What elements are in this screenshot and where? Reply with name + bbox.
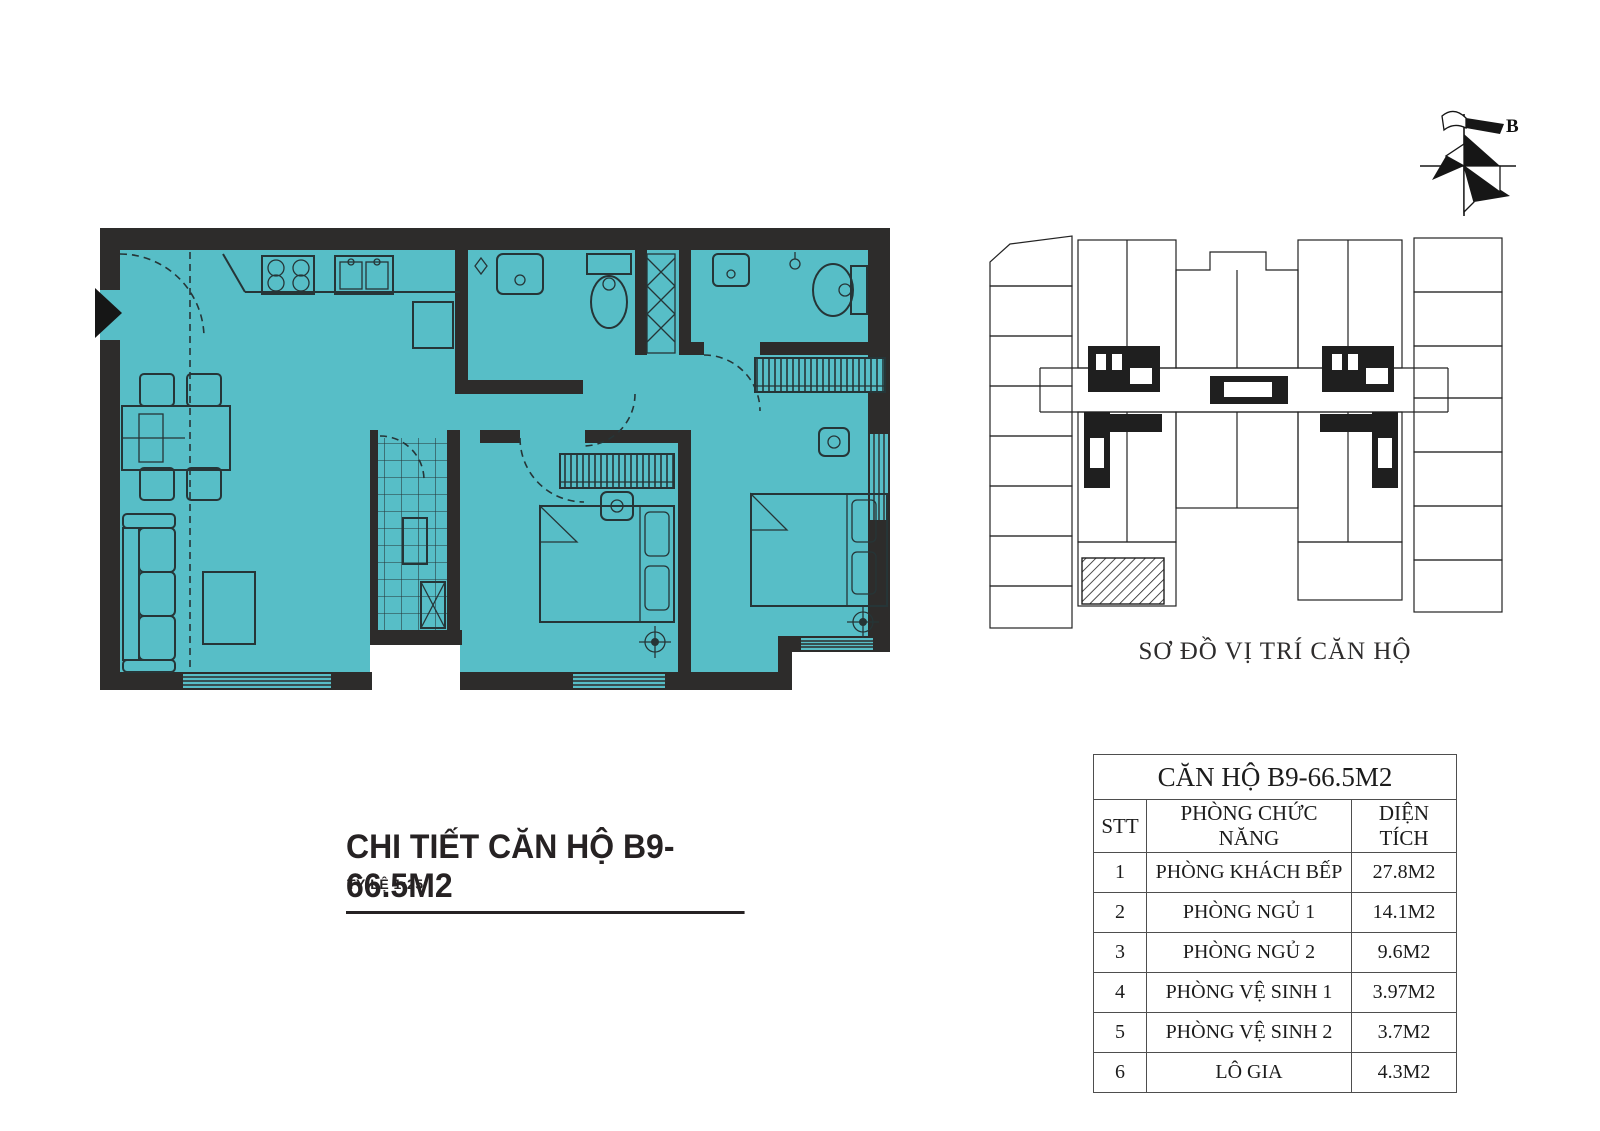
table-row: 1 PHÒNG KHÁCH BẾP 27.8M2 xyxy=(1094,853,1457,893)
scale-label: TỶ LỆ 1:25 xyxy=(347,876,424,892)
building-cores xyxy=(1084,346,1398,488)
loggia xyxy=(378,436,447,630)
detail-plan-title: CHI TIẾT CĂN HỘ B9- 66.5M2 xyxy=(346,828,745,914)
wardrobe xyxy=(560,454,674,488)
table-row: 3 PHÒNG NGỦ 2 9.6M2 xyxy=(1094,933,1457,973)
cell-room: PHÒNG KHÁCH BẾP xyxy=(1147,853,1352,893)
location-map-title: SƠ ĐỒ VỊ TRÍ CĂN HỘ xyxy=(1095,638,1455,666)
unit-outlines xyxy=(990,236,1502,628)
bedroom1-window xyxy=(573,674,665,688)
living-window xyxy=(183,674,331,688)
cell-stt: 4 xyxy=(1094,973,1147,1013)
table-row: 6 LÔ GIA 4.3M2 xyxy=(1094,1053,1457,1093)
area-table: CĂN HỘ B9-66.5M2 STT PHÒNG CHỨC NĂNG DIỆ… xyxy=(1093,754,1457,1093)
header-stt: STT xyxy=(1094,800,1147,853)
cell-stt: 1 xyxy=(1094,853,1147,893)
cell-stt: 3 xyxy=(1094,933,1147,973)
compass-label: B xyxy=(1506,116,1519,137)
table-title: CĂN HỘ B9-66.5M2 xyxy=(1094,755,1457,800)
table-row: 2 PHÒNG NGỦ 1 14.1M2 xyxy=(1094,893,1457,933)
tiled-floor xyxy=(378,438,447,630)
highlighted-unit-b9 xyxy=(1082,558,1164,604)
cell-room: PHÒNG NGỦ 1 xyxy=(1147,893,1352,933)
compass-north-icon: B xyxy=(1412,100,1522,220)
cell-room: PHÒNG VỆ SINH 1 xyxy=(1147,973,1352,1013)
floor-area xyxy=(100,228,890,690)
table-title-row: CĂN HỘ B9-66.5M2 xyxy=(1094,755,1457,800)
cell-area: 14.1M2 xyxy=(1352,893,1457,933)
cell-area: 4.3M2 xyxy=(1352,1053,1457,1093)
table-row: 5 PHÒNG VỆ SINH 2 3.7M2 xyxy=(1094,1013,1457,1053)
cell-area: 3.7M2 xyxy=(1352,1013,1457,1053)
bedroom2-window xyxy=(801,638,873,650)
header-room: PHÒNG CHỨC NĂNG xyxy=(1147,800,1352,853)
cell-room: PHÒNG VỆ SINH 2 xyxy=(1147,1013,1352,1053)
table-header-row: STT PHÒNG CHỨC NĂNG DIỆN TÍCH xyxy=(1094,800,1457,853)
cell-area: 9.6M2 xyxy=(1352,933,1457,973)
apartment-floor-plan xyxy=(95,222,895,722)
cell-stt: 2 xyxy=(1094,893,1147,933)
cell-room: LÔ GIA xyxy=(1147,1053,1352,1093)
page: { "colors": { "floor": "#57bec7", "wall"… xyxy=(0,0,1600,1131)
cell-area: 27.8M2 xyxy=(1352,853,1457,893)
wardrobe xyxy=(755,358,885,392)
building-location-diagram xyxy=(980,228,1510,643)
table-row: 4 PHÒNG VỆ SINH 1 3.97M2 xyxy=(1094,973,1457,1013)
cell-stt: 5 xyxy=(1094,1013,1147,1053)
bedroom2-side-window xyxy=(870,434,888,520)
cell-stt: 6 xyxy=(1094,1053,1147,1093)
cell-room: PHÒNG NGỦ 2 xyxy=(1147,933,1352,973)
cell-area: 3.97M2 xyxy=(1352,973,1457,1013)
header-area: DIỆN TÍCH xyxy=(1352,800,1457,853)
